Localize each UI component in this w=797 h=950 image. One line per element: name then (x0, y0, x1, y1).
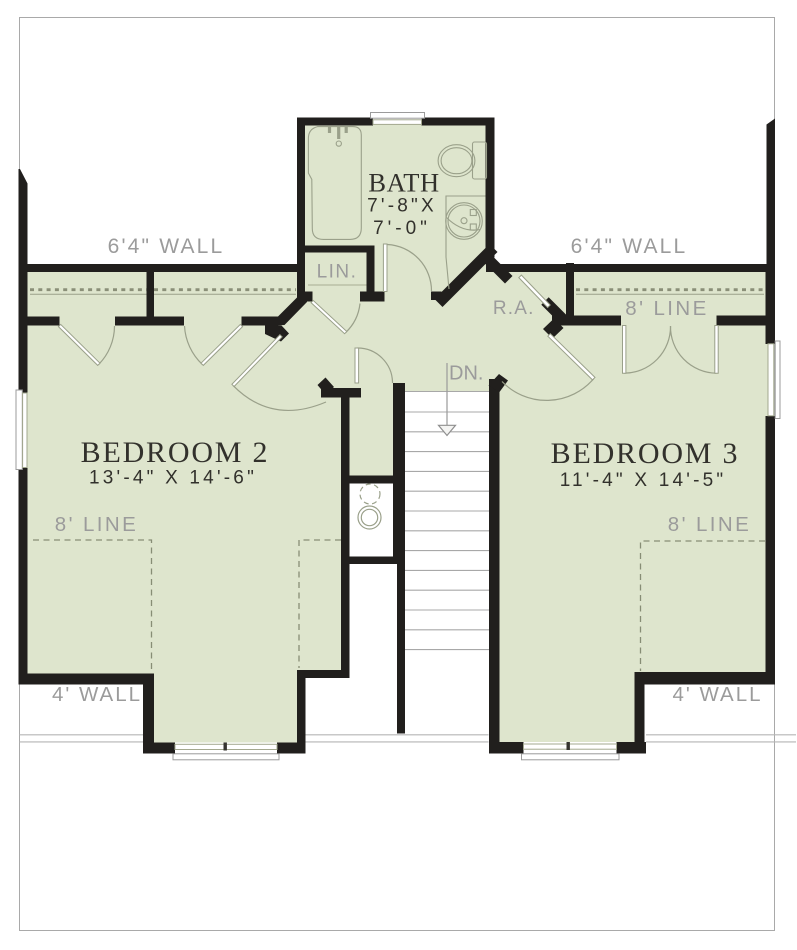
svg-text:11'-4" X 14'-5": 11'-4" X 14'-5" (560, 470, 727, 491)
svg-text:7'-8"X: 7'-8"X (367, 196, 437, 217)
svg-text:4' WALL: 4' WALL (52, 683, 142, 706)
svg-text:4' WALL: 4' WALL (672, 683, 762, 706)
svg-text:BEDROOM 3: BEDROOM 3 (551, 437, 740, 470)
svg-text:13'-4" X 14'-6": 13'-4" X 14'-6" (89, 468, 257, 489)
svg-text:8' LINE: 8' LINE (625, 297, 708, 320)
svg-text:R.A.: R.A. (493, 298, 535, 319)
svg-text:BATH: BATH (368, 168, 439, 198)
svg-text:6'4" WALL: 6'4" WALL (571, 235, 688, 258)
svg-text:6'4" WALL: 6'4" WALL (108, 235, 225, 258)
svg-text:7'-0": 7'-0" (373, 218, 431, 239)
svg-text:8' LINE: 8' LINE (55, 513, 138, 536)
svg-text:DN.: DN. (449, 363, 483, 385)
svg-text:8' LINE: 8' LINE (668, 513, 751, 536)
svg-text:LIN.: LIN. (317, 262, 358, 283)
svg-text:BEDROOM 2: BEDROOM 2 (81, 436, 270, 469)
